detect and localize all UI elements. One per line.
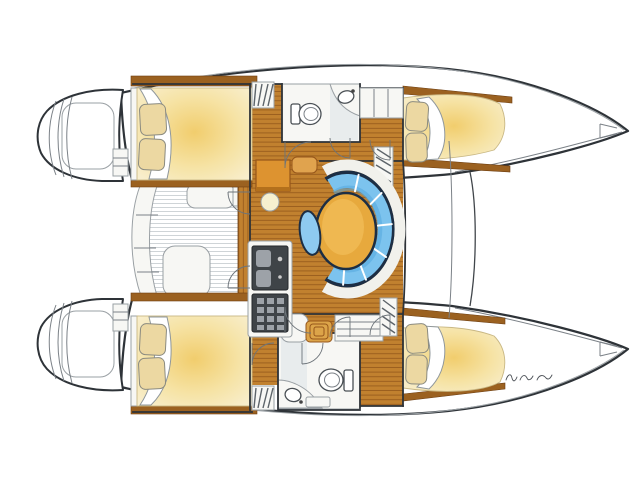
cockpit-cushion — [163, 246, 210, 297]
pillow — [139, 323, 167, 355]
nav-stool — [261, 193, 279, 211]
starboard-transom-steps — [38, 299, 123, 390]
port-transom-steps — [38, 90, 123, 181]
nav-seat — [292, 157, 317, 173]
toilet-tank — [344, 370, 353, 391]
sink-basin — [256, 250, 271, 267]
boarding-ladder — [113, 149, 128, 331]
pillow — [406, 133, 428, 163]
faucet — [299, 400, 303, 404]
pillow — [405, 101, 429, 131]
starboard-aft-cabin — [131, 316, 252, 406]
companionway-steps — [306, 321, 332, 342]
table-highlight — [322, 199, 364, 255]
pillow — [405, 355, 427, 385]
sink-basin — [256, 270, 271, 287]
aft-companionway-hatch — [380, 298, 397, 336]
pillow — [138, 357, 166, 389]
chart-table-edge — [256, 187, 290, 191]
catamaran-deck-plan — [0, 0, 640, 480]
cabinet-row — [360, 88, 403, 118]
head-step — [306, 397, 330, 407]
faucet — [351, 89, 355, 93]
pillow — [405, 323, 429, 353]
port-head — [282, 84, 360, 142]
starboard-head — [278, 333, 360, 410]
starboard-aft-cabin-foot-trim — [131, 293, 252, 301]
pillow — [138, 138, 166, 170]
galley-faucet — [278, 257, 283, 262]
port-aft-cabin — [131, 88, 252, 180]
forward-crossbeam — [470, 172, 475, 306]
deck-plan-page — [0, 0, 640, 480]
cockpit-seat — [187, 184, 234, 208]
pillow — [139, 103, 167, 135]
cockpit — [132, 184, 250, 298]
